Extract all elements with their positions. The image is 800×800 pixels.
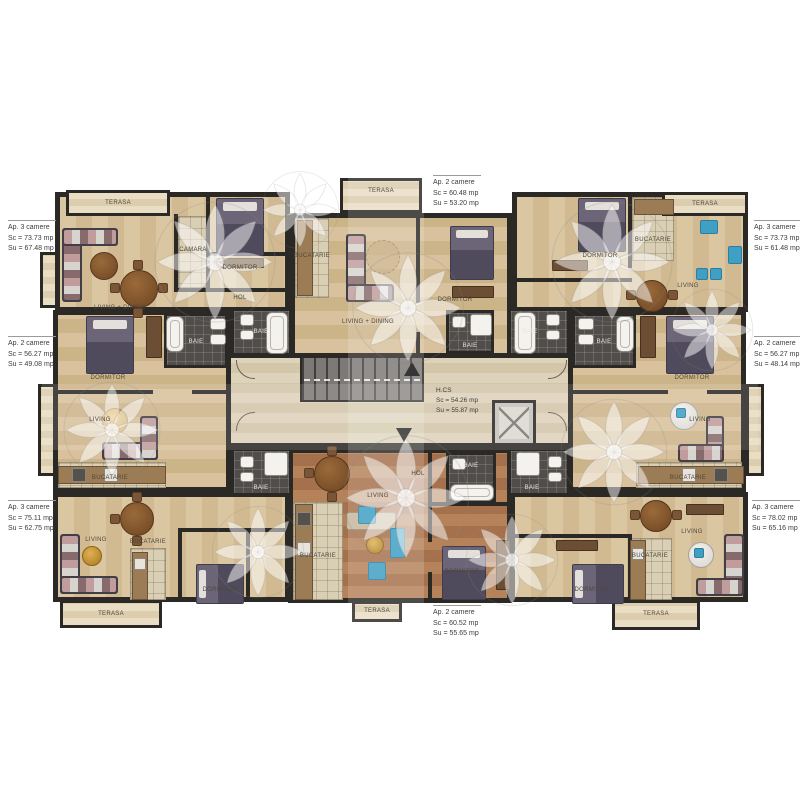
- wall: [428, 448, 432, 504]
- closet: [686, 504, 724, 515]
- toilet: [240, 456, 254, 468]
- wall: [416, 332, 420, 358]
- room-label-bucatarie: BUCATARIE: [635, 237, 671, 243]
- dining-table: [636, 280, 668, 312]
- room-label-bucatarie: BUCATARIE: [300, 553, 336, 559]
- stove: [297, 512, 311, 526]
- room-label-bucatarie: BUCATARIE: [92, 475, 128, 481]
- wall: [206, 192, 210, 290]
- toilet: [452, 316, 466, 328]
- wardrobe: [640, 316, 656, 358]
- annotation-corridor: H.CS Sc = 54.26 mp Su = 55.87 mp: [436, 386, 478, 415]
- coffee-table: [82, 546, 102, 566]
- armchair: [358, 506, 376, 524]
- room-label-terasa: TERASA: [643, 611, 669, 617]
- room-label-bucatarie: BUCATARIE: [130, 539, 166, 545]
- usable-area: Su = 55.65 mp: [433, 629, 481, 640]
- built-area: Sc = 56.27 mp: [754, 350, 800, 361]
- usable-area: Su = 61.48 mp: [754, 244, 800, 255]
- dresser: [556, 540, 598, 551]
- apartment-type: Ap. 2 camere: [433, 608, 481, 619]
- bed: [572, 564, 624, 604]
- built-area: Sc = 78.02 mp: [752, 514, 800, 525]
- wall: [416, 213, 420, 303]
- room-label-dormitor: DORMITOR: [203, 587, 238, 593]
- built-area: Sc = 56.27 mp: [8, 350, 56, 361]
- room-label-bucatarie: BUCATARIE: [670, 475, 706, 481]
- wall: [246, 532, 250, 602]
- bathtub: [616, 316, 634, 352]
- usable-area: Su = 65.16 mp: [752, 524, 800, 535]
- room-label-terasa: TERASA: [364, 608, 390, 614]
- stairs-down-arrow-icon: [396, 428, 412, 442]
- dining-table: [120, 270, 158, 308]
- usable-area: Su = 48.14 mp: [754, 360, 800, 371]
- room-label-living-dining: LIVING + DINING: [94, 305, 146, 311]
- sofa: [678, 444, 724, 462]
- apartment-type: Ap. 3 camere: [752, 503, 800, 514]
- room-label-living: LIVING: [367, 493, 388, 499]
- kitchen-sink: [134, 558, 146, 570]
- decor: [694, 548, 704, 558]
- stairs-up-arrow-icon: [404, 362, 420, 376]
- elevator: [492, 400, 536, 446]
- sofa: [140, 416, 158, 460]
- shower: [264, 452, 288, 476]
- built-area: Sc = 54.26 mp: [436, 396, 478, 406]
- divider: [8, 220, 56, 221]
- sink: [546, 330, 560, 340]
- bed: [196, 564, 244, 604]
- room-label-baie: BAIE: [189, 339, 204, 345]
- room-label-dormitor: DORMITOR: [583, 253, 618, 259]
- room-label-baie: BAIE: [523, 329, 538, 335]
- chair: [626, 290, 636, 300]
- built-area: Sc = 73.73 mp: [754, 234, 800, 245]
- stove: [714, 468, 728, 482]
- sofa: [696, 578, 744, 596]
- chair: [327, 492, 337, 502]
- apartment-type: Ap. 2 camere: [754, 339, 800, 350]
- bed: [216, 198, 264, 256]
- room-label-living: LIVING: [689, 417, 710, 423]
- wall: [512, 278, 632, 282]
- room-label-living: LIVING: [89, 417, 110, 423]
- room-label-living: LIVING: [85, 537, 106, 543]
- toilet: [578, 318, 594, 330]
- wall: [568, 390, 668, 394]
- bathtub: [450, 484, 494, 501]
- usable-area: Su = 62.75 mp: [8, 524, 56, 535]
- wall: [178, 528, 182, 602]
- wall: [432, 502, 512, 506]
- divider: [8, 500, 56, 501]
- dining-table: [640, 500, 672, 532]
- annotation-bottom-left-apartment: Ap. 3 camere Sc = 75.11 mp Su = 62.75 mp: [8, 500, 56, 535]
- wall: [628, 192, 632, 268]
- bed: [578, 198, 626, 252]
- room-label-terasa: TERASA: [98, 611, 124, 617]
- sofa: [60, 576, 118, 594]
- built-area: Sc = 75.11 mp: [8, 514, 56, 525]
- corridor-name: H.CS: [436, 386, 478, 396]
- balcony-left-upper: [40, 252, 58, 308]
- sofa: [346, 284, 394, 302]
- annotation-bottom-center-apartment: Ap. 2 camere Sc = 60.52 mp Su = 55.65 mp: [430, 604, 484, 642]
- dining-table: [120, 502, 154, 536]
- room-label-bucatarie: BUCATARIE: [632, 553, 668, 559]
- room-label-baie: BAIE: [254, 485, 269, 491]
- room-label-dormitor: DORMITOR: [438, 297, 473, 303]
- room-label-dormitor: DORMITOR: [91, 375, 126, 381]
- usable-area: Su = 55.87 mp: [436, 406, 478, 416]
- apartment-type: Ap. 3 camere: [8, 223, 56, 234]
- toilet: [210, 318, 226, 330]
- wall: [174, 214, 178, 290]
- armchair: [700, 220, 718, 234]
- room-label-dormitor: DORMITOR: [675, 375, 710, 381]
- wall: [510, 534, 632, 538]
- armchair: [368, 562, 386, 580]
- chair: [133, 260, 143, 270]
- bed: [86, 316, 134, 374]
- toilet: [546, 314, 560, 326]
- dresser: [552, 260, 588, 271]
- coffee-table: [90, 252, 118, 280]
- kitchen-counter: [634, 199, 674, 215]
- room-label-baie: BAIE: [525, 485, 540, 491]
- coffee-table: [366, 536, 384, 554]
- room-label-baie: BAIE: [597, 339, 612, 345]
- apartment-type: Ap. 2 camere: [8, 339, 56, 350]
- wall: [178, 528, 290, 532]
- room-label-hol: HOL: [411, 471, 424, 477]
- annotation-top-center-apartment: Ap. 2 camere Sc = 60.48 mp Su = 53.20 mp: [430, 174, 484, 212]
- chair: [304, 468, 314, 478]
- room-label-living-dining: LIVING + DINING: [342, 319, 394, 325]
- floor-plan-canvas: TERASA DORMITOR CAMARA LIVING + DINING H…: [0, 0, 800, 800]
- room-label-dormitor: DORMITOR: [575, 587, 610, 593]
- sink: [578, 334, 594, 345]
- sink: [240, 330, 254, 340]
- shower: [470, 314, 492, 336]
- dining-table: [314, 456, 350, 492]
- sink: [548, 472, 562, 482]
- wardrobe: [496, 540, 510, 590]
- wardrobe: [146, 316, 162, 358]
- annotation-mid-left-apartment: Ap. 2 camere Sc = 56.27 mp Su = 49.08 mp: [8, 336, 56, 371]
- shower: [516, 452, 540, 476]
- divider: [433, 605, 481, 606]
- stool: [710, 268, 722, 280]
- wall: [53, 390, 153, 394]
- sofa: [62, 228, 118, 246]
- chair: [110, 283, 120, 293]
- bed: [450, 226, 494, 280]
- room-label-dormitor: DORMITOR: [223, 265, 258, 271]
- chair: [110, 514, 120, 524]
- wall: [707, 390, 746, 394]
- annotation-mid-right-apartment: Ap. 2 camere Sc = 56.27 mp Su = 48.14 mp: [754, 336, 800, 371]
- room-label-terasa: TERASA: [368, 188, 394, 194]
- divider: [752, 500, 800, 501]
- armchair: [728, 246, 742, 264]
- divider: [754, 336, 800, 337]
- built-area: Sc = 73.73 mp: [8, 234, 56, 245]
- stool: [696, 268, 708, 280]
- usable-area: Su = 67.48 mp: [8, 244, 56, 255]
- room-label-terasa: TERASA: [692, 201, 718, 207]
- annotation-top-left-apartment: Ap. 3 camere Sc = 73.73 mp Su = 67.48 mp: [8, 220, 56, 255]
- toilet: [240, 314, 254, 326]
- room-label-living: LIVING: [681, 529, 702, 535]
- chair: [668, 290, 678, 300]
- divider: [754, 220, 800, 221]
- toilet: [548, 456, 562, 468]
- room-label-bucatarie: BUCATARIE: [294, 253, 330, 259]
- lounge-chair: [390, 528, 405, 558]
- round-rug: [366, 240, 400, 274]
- chair: [132, 492, 142, 502]
- divider: [433, 175, 481, 176]
- room-label-baie: BAIE: [254, 329, 269, 335]
- built-area: Sc = 60.52 mp: [433, 619, 481, 630]
- terrace-top-center: [340, 178, 422, 213]
- wall: [192, 390, 231, 394]
- room-label-terasa: TERASA: [105, 200, 131, 206]
- bathtub: [266, 312, 288, 354]
- room-label-baie: BAIE: [463, 343, 478, 349]
- room-label-living: LIVING: [677, 283, 698, 289]
- chair: [327, 446, 337, 456]
- balcony-left-lower: [38, 384, 56, 476]
- apartment-type: Ap. 3 camere: [754, 223, 800, 234]
- sink: [240, 472, 254, 482]
- chair: [672, 510, 682, 520]
- wall: [174, 288, 290, 292]
- wall: [428, 502, 432, 542]
- annotation-top-right-apartment: Ap. 3 camere Sc = 73.73 mp Su = 61.48 mp: [754, 220, 800, 255]
- wall: [428, 572, 432, 603]
- usable-area: Su = 53.20 mp: [433, 199, 481, 210]
- decor: [676, 408, 686, 418]
- balcony-right: [746, 384, 764, 476]
- room-label-dormitor: DORMITOR: [445, 569, 480, 575]
- apartment-type: Ap. 2 camere: [433, 178, 481, 189]
- built-area: Sc = 60.48 mp: [433, 189, 481, 200]
- bathtub: [166, 316, 184, 352]
- sink: [210, 334, 226, 345]
- room-label-camara: CAMARA: [179, 247, 206, 253]
- chair: [630, 510, 640, 520]
- bed: [666, 316, 714, 374]
- chair: [158, 283, 168, 293]
- annotation-bottom-right-apartment: Ap. 3 camere Sc = 78.02 mp Su = 65.16 mp: [752, 500, 800, 535]
- room-label-baie: BAIE: [464, 463, 479, 469]
- stove: [72, 468, 86, 482]
- usable-area: Su = 49.08 mp: [8, 360, 56, 371]
- apartment-type: Ap. 3 camere: [8, 503, 56, 514]
- room-label-hol: HOL: [233, 295, 246, 301]
- divider: [8, 336, 56, 337]
